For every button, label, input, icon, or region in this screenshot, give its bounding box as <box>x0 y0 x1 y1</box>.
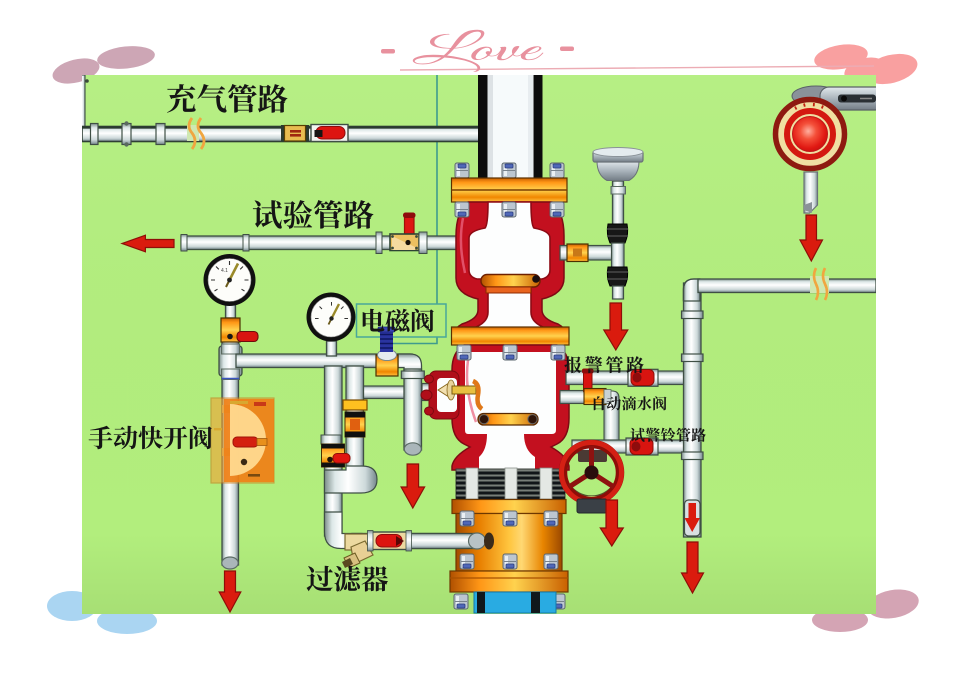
svg-text:4.1: 4.1 <box>221 268 228 274</box>
